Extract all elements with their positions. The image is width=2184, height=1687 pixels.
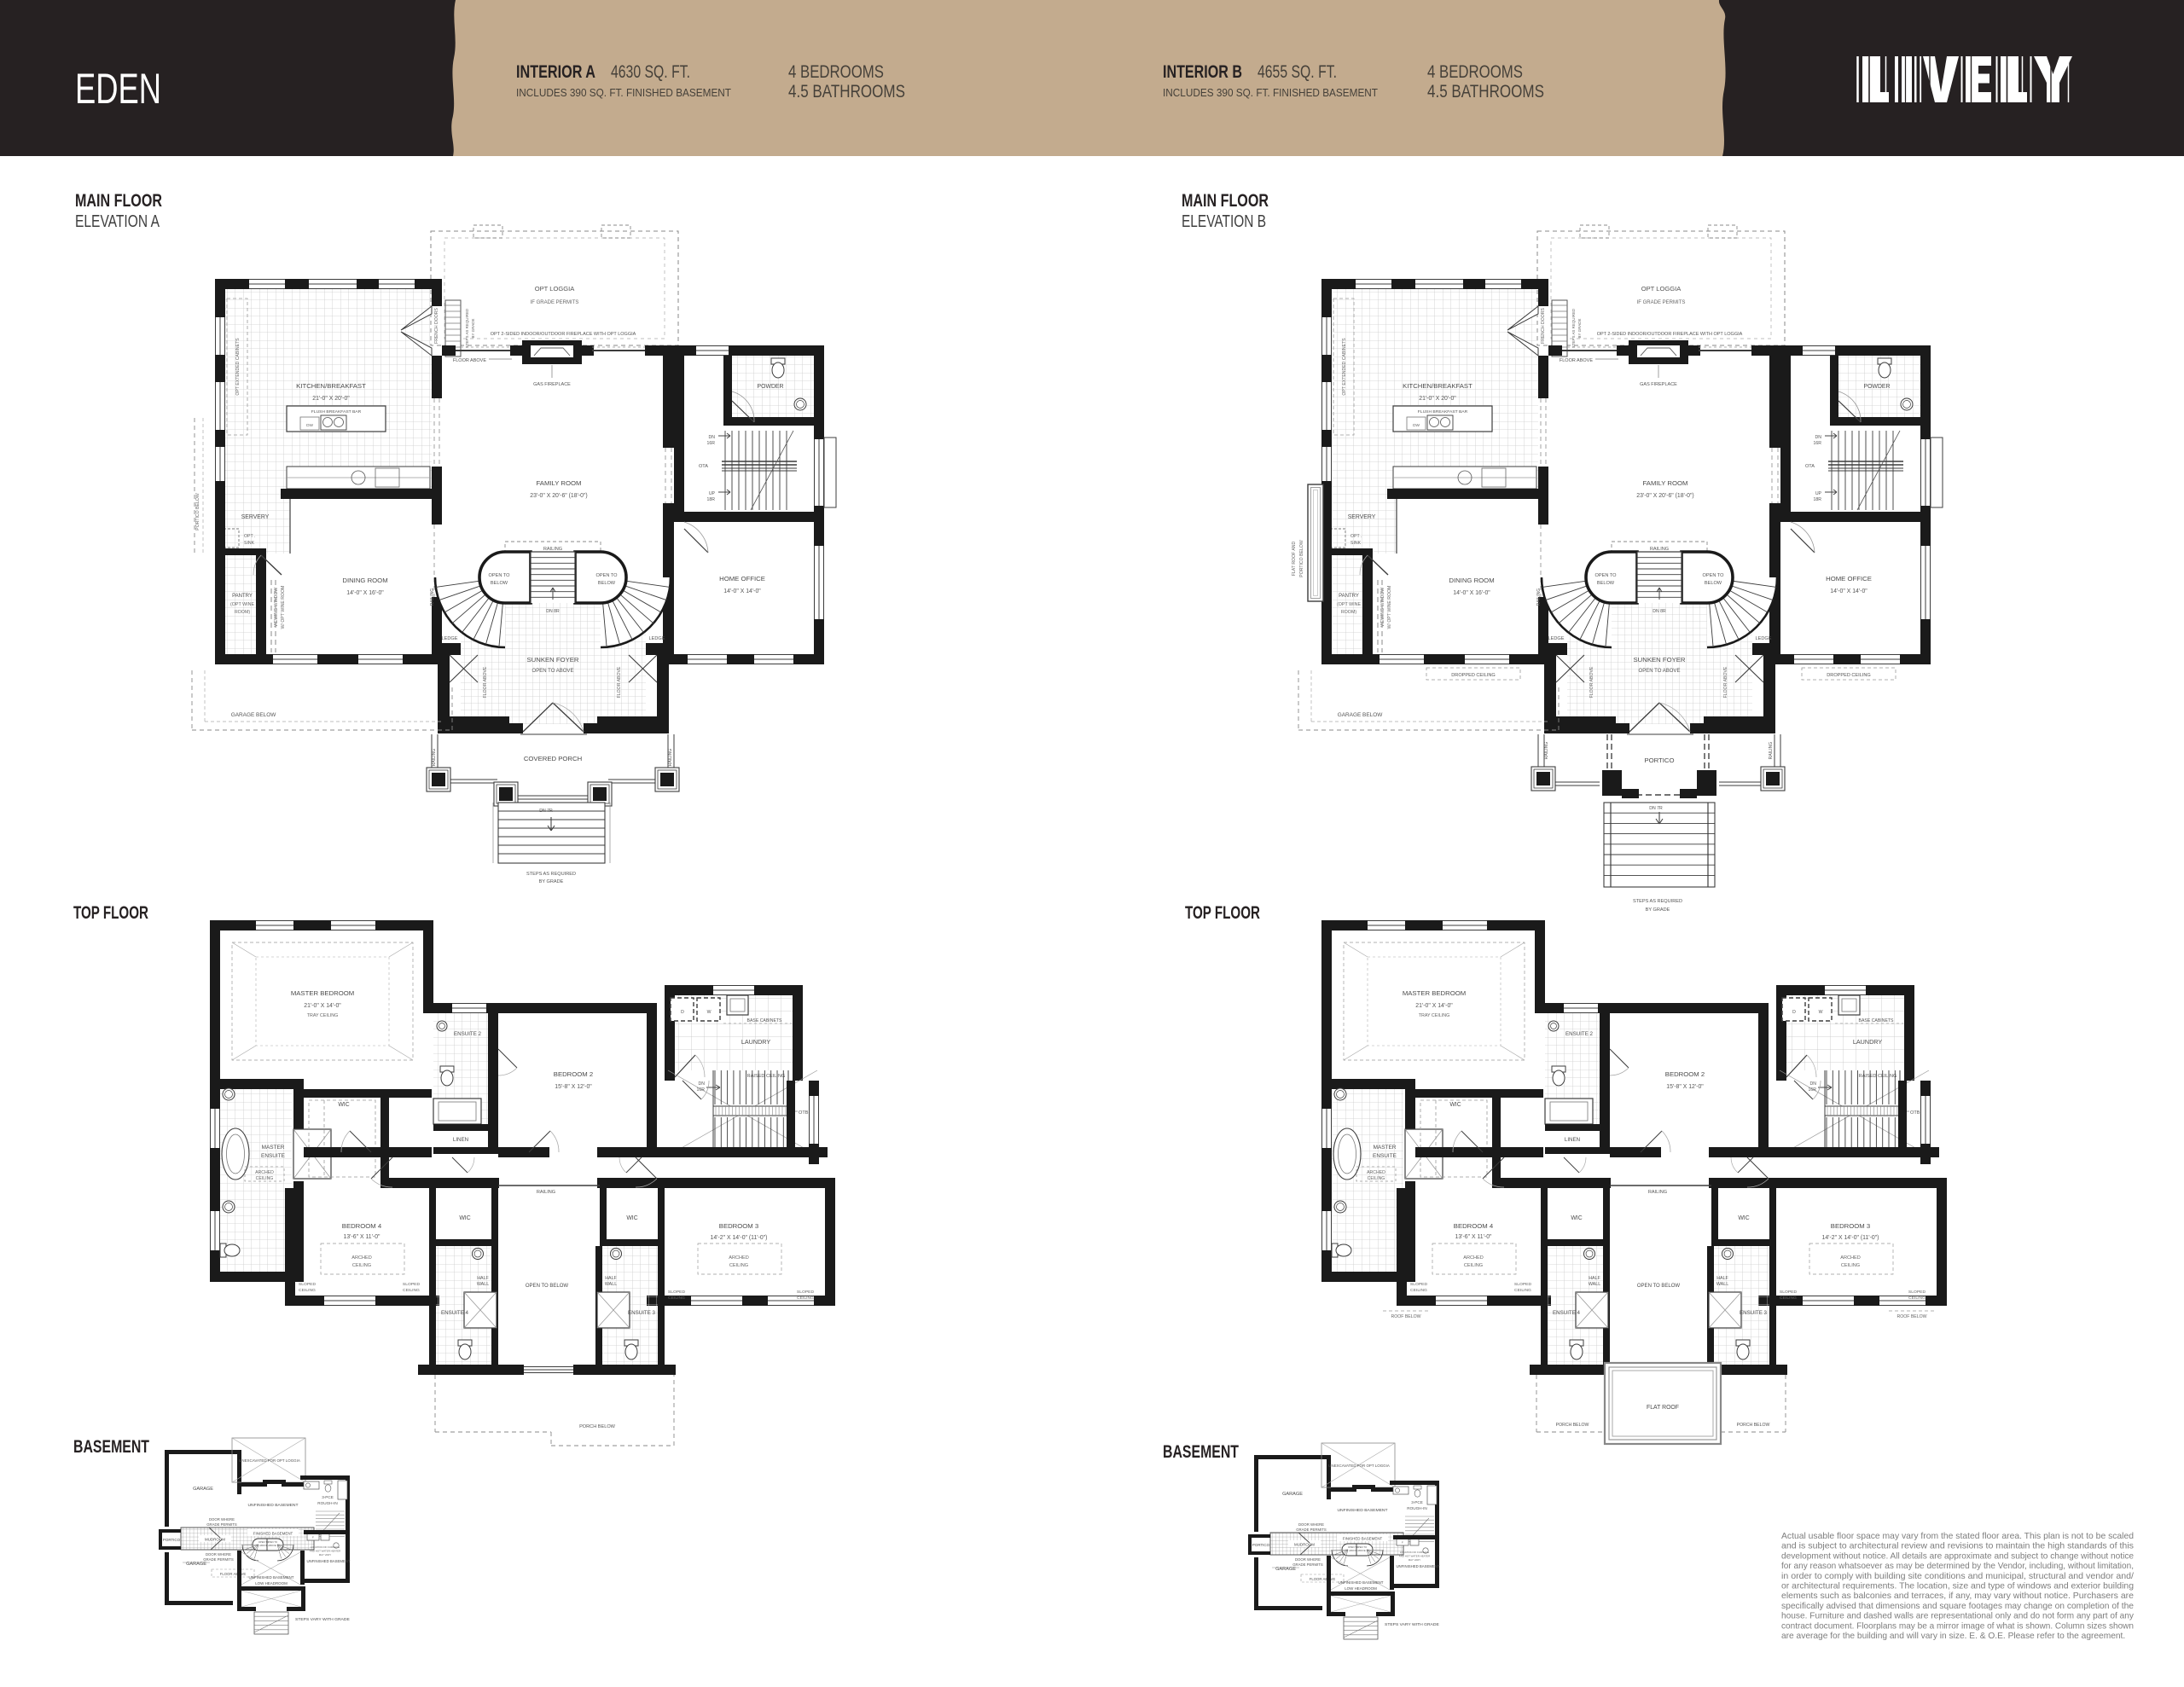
svg-text:14'-0" X 16'-0": 14'-0" X 16'-0" [1453,590,1490,596]
svg-text:CEILING: CEILING [729,1263,748,1268]
svg-text:16R: 16R [697,1087,706,1093]
svg-text:UNEXCAVATED FOR OPT LOGGIA: UNEXCAVATED FOR OPT LOGGIA [1328,1464,1390,1468]
svg-text:SUNKEN FOYER: SUNKEN FOYER [1633,656,1685,664]
svg-text:GAS FIREPLACE: GAS FIREPLACE [1640,382,1677,387]
svg-text:3-PCE: 3-PCE [1411,1500,1423,1504]
svg-text:INTERIOR B: INTERIOR B [1163,61,1242,82]
svg-text:RAILING: RAILING [432,749,437,767]
svg-text:14'-0" X 16'-0": 14'-0" X 16'-0" [346,590,384,596]
svg-text:ENSUITE 4: ENSUITE 4 [441,1310,469,1316]
svg-text:COVERED PORCH: COVERED PORCH [524,755,582,762]
svg-text:DN 7R: DN 7R [1649,806,1663,811]
svg-text:DN: DN [1815,435,1822,440]
svg-text:CEILING: CEILING [299,1288,316,1293]
svg-text:DOOR WHERE: DOOR WHERE [1298,1522,1324,1527]
svg-text:HALF: HALF [1589,1276,1600,1281]
svg-text:F: F [1402,1541,1403,1545]
svg-text:WIC: WIC [626,1215,637,1221]
svg-text:FAMILY ROOM: FAMILY ROOM [1642,479,1687,487]
svg-text:FLOOR ABOVE: FLOOR ABOVE [1589,666,1594,698]
svg-text:SINK: SINK [244,541,255,546]
svg-text:for any reason whatsoever as m: for any reason whatsoever as may be dete… [1781,1562,2134,1571]
svg-text:ARCHED: ARCHED [255,1170,274,1175]
svg-text:BY GRADE: BY GRADE [539,879,564,884]
svg-text:BY GRADE: BY GRADE [1646,907,1670,913]
svg-text:OTA: OTA [699,464,708,469]
svg-text:STEPS AS REQUIRED: STEPS AS REQUIRED [1571,309,1576,348]
svg-text:16R: 16R [707,441,716,446]
svg-text:SLOPED: SLOPED [403,1282,421,1287]
svg-text:HOME OFFICE: HOME OFFICE [719,575,765,583]
svg-text:house. Furniture and dashed wa: house. Furniture and dashed walls are re… [1781,1612,2135,1621]
svg-text:SLOPED: SLOPED [668,1290,686,1295]
svg-text:BELOW: BELOW [491,581,508,586]
svg-text:BEDROOM 2: BEDROOM 2 [1665,1070,1705,1078]
svg-text:ARCHED: ARCHED [1367,1170,1385,1175]
svg-text:WALL: WALL [477,1282,489,1287]
svg-text:15'-8" X 12'-0": 15'-8" X 12'-0" [555,1084,592,1090]
svg-text:GRADE PERMITS: GRADE PERMITS [1292,1562,1323,1567]
svg-text:OPT EXTENDED CABINETS: OPT EXTENDED CABINETS [1342,338,1347,396]
svg-text:FLUSH BREAKFAST BAR: FLUSH BREAKFAST BAR [1418,409,1468,415]
svg-text:BASEMENT: BASEMENT [1163,1442,1239,1462]
svg-text:DN: DN [699,1081,706,1087]
svg-text:SERVERY: SERVERY [241,514,270,520]
svg-text:DW: DW [1413,423,1420,428]
svg-text:PORCH BELOW: PORCH BELOW [1556,1423,1589,1428]
svg-text:HALF: HALF [1716,1276,1728,1281]
svg-text:BELOW: BELOW [1705,581,1722,586]
svg-text:SLOPED: SLOPED [1514,1282,1532,1287]
svg-text:RAILING: RAILING [430,588,435,606]
svg-text:OTA: OTA [1805,464,1815,469]
svg-text:F: F [312,1536,314,1539]
svg-text:DN: DN [709,435,716,440]
svg-text:PANTRY: PANTRY [232,594,253,599]
svg-text:DROPPED CEILING: DROPPED CEILING [1827,673,1870,678]
svg-text:BEDROOM 4: BEDROOM 4 [1454,1222,1494,1230]
svg-text:CEILING: CEILING [1780,1296,1797,1301]
svg-text:ENSUITE 4: ENSUITE 4 [1553,1310,1581,1316]
svg-text:16R: 16R [1809,1087,1817,1093]
svg-text:MASTER BEDROOM: MASTER BEDROOM [1403,989,1466,997]
svg-text:SINK: SINK [1350,541,1362,546]
svg-text:OPEN TO: OPEN TO [1356,1545,1367,1549]
svg-text:UNFINISHED BASEMENT: UNFINISHED BASEMENT [249,1575,294,1580]
svg-text:LEDGE: LEDGE [1756,636,1772,641]
svg-text:W: W [707,1010,712,1015]
svg-text:CEILING: CEILING [1908,1296,1926,1301]
svg-text:RAISED CEILING: RAISED CEILING [1859,1074,1897,1079]
svg-text:OTB: OTB [799,1110,809,1116]
svg-text:BEDROOM 3: BEDROOM 3 [719,1222,758,1230]
svg-text:GRADE PERMITS: GRADE PERMITS [1296,1528,1327,1532]
svg-text:Actual usable floor space may: Actual usable floor space may vary from … [1781,1532,2134,1541]
svg-text:BY GRADE: BY GRADE [1577,319,1582,339]
svg-text:14'-2" X 14'-0" (11'-0"): 14'-2" X 14'-0" (11'-0") [1822,1235,1879,1241]
svg-text:4.5 BATHROOMS: 4.5 BATHROOMS [1427,81,1544,101]
svg-text:CEILING: CEILING [1841,1263,1860,1268]
svg-text:OPEN TO ABOVE: OPEN TO ABOVE [1639,669,1681,674]
svg-text:OPT EXTENDED CABINETS: OPT EXTENDED CABINETS [235,338,241,396]
svg-text:DN 8R: DN 8R [546,609,560,614]
svg-text:development without notice. Al: development without notice. All details … [1781,1551,2134,1561]
svg-text:(OPT WINE: (OPT WINE [1337,602,1361,607]
svg-text:WIC: WIC [1738,1215,1749,1221]
svg-text:ROOM): ROOM) [1341,610,1357,615]
svg-text:OPEN TO: OPEN TO [1703,573,1725,578]
svg-text:STEPS VARY WITH GRADE: STEPS VARY WITH GRADE [295,1617,350,1622]
svg-text:specifically advised that dime: specifically advised that dimensions and… [1781,1602,2134,1611]
svg-text:POWDER: POWDER [1864,384,1891,390]
svg-text:OPEN TO BELOW: OPEN TO BELOW [1637,1284,1681,1289]
svg-text:ARCHED: ARCHED [1463,1255,1484,1261]
svg-text:14'-0" X 14'-0": 14'-0" X 14'-0" [723,588,761,594]
svg-text:DOOR WHERE: DOOR WHERE [1295,1557,1321,1562]
svg-text:21'-0" X 20'-0": 21'-0" X 20'-0" [312,396,350,402]
svg-text:PORTICO BELOW: PORTICO BELOW [195,493,200,530]
svg-text:FLOOR ABOVE: FLOOR ABOVE [1310,1577,1336,1581]
svg-text:23'-0" X 20'-6" (18'-0"): 23'-0" X 20'-6" (18'-0") [1636,493,1693,499]
svg-text:UNFINISHED BASEMENT: UNFINISHED BASEMENT [1337,1508,1387,1513]
svg-text:GAS FIREPLACE: GAS FIREPLACE [533,382,571,387]
svg-text:23'-0" X 20'-6" (18'-0"): 23'-0" X 20'-6" (18'-0") [530,493,587,499]
svg-text:BASE CABINETS: BASE CABINETS [747,1018,783,1023]
svg-text:ELEVATION B: ELEVATION B [1182,212,1266,231]
svg-text:MUDROOM: MUDROOM [205,1538,225,1542]
svg-text:13'-6" X 11'-0": 13'-6" X 11'-0" [344,1234,380,1240]
svg-text:ABOVE: ABOVE [1357,1549,1366,1552]
svg-text:HALF: HALF [477,1276,489,1281]
svg-text:INCLUDES 390 SQ. FT. FINISHED: INCLUDES 390 SQ. FT. FINISHED BASEMENT [516,86,731,99]
svg-text:ROUGH-IN: ROUGH-IN [317,1501,337,1505]
svg-text:DN 7R: DN 7R [539,809,553,814]
svg-text:RAILING: RAILING [1648,1190,1667,1195]
svg-text:UP: UP [1815,491,1822,496]
svg-text:AND HOT WATER HEATER: AND HOT WATER HEATER [310,1550,340,1553]
svg-text:AND HOT WATER HEATER: AND HOT WATER HEATER [1399,1555,1430,1558]
svg-text:KITCHEN/BREAKFAST: KITCHEN/BREAKFAST [1403,382,1472,390]
svg-text:MAIN FLOOR: MAIN FLOOR [75,191,162,211]
svg-text:OPT LOGGIA: OPT LOGGIA [1641,285,1682,293]
svg-text:OPEN TO: OPEN TO [596,573,619,578]
svg-text:FINISHED BASEMENT: FINISHED BASEMENT [1343,1537,1383,1541]
svg-text:ENSUITE: ENSUITE [1373,1153,1397,1159]
svg-text:INTERIOR A: INTERIOR A [516,61,595,82]
svg-text:FAMILY ROOM: FAMILY ROOM [536,479,581,487]
svg-text:WIC: WIC [1449,1102,1461,1108]
svg-text:LEDGE: LEDGE [1548,636,1565,641]
svg-text:FRENCH DOORS: FRENCH DOORS [434,308,439,344]
svg-text:ABOVE: ABOVE [268,1544,276,1547]
svg-text:LINEN: LINEN [453,1137,468,1143]
svg-text:SUNKEN FOYER: SUNKEN FOYER [526,656,578,664]
svg-text:HALF: HALF [605,1276,617,1281]
svg-text:BEDROOM 2: BEDROOM 2 [554,1070,593,1078]
svg-text:SLOPED: SLOPED [1780,1290,1798,1295]
svg-text:VIEWING WINDOW: VIEWING WINDOW [1380,588,1385,628]
svg-text:W/ OPT WINE ROOM: W/ OPT WINE ROOM [281,586,286,629]
svg-text:DOOR WHERE: DOOR WHERE [209,1517,235,1522]
svg-text:DN: DN [1810,1081,1817,1087]
svg-text:CEILING: CEILING [1514,1288,1531,1293]
svg-text:13'-6" X 11'-0": 13'-6" X 11'-0" [1455,1234,1492,1240]
svg-text:3-PCE: 3-PCE [322,1495,334,1499]
svg-text:BY GRADE: BY GRADE [471,319,475,339]
svg-text:DINING ROOM: DINING ROOM [1449,577,1494,584]
svg-text:VIEWING WINDOW: VIEWING WINDOW [274,588,279,628]
svg-text:BELOW: BELOW [1597,581,1615,586]
svg-text:21'-0" X 14'-0": 21'-0" X 14'-0" [304,1003,341,1009]
svg-text:UP: UP [709,491,716,496]
svg-text:BEDROOM 4: BEDROOM 4 [342,1222,382,1230]
svg-text:ARCHED: ARCHED [1840,1255,1861,1261]
svg-text:OPT 2-SIDED INDOOR/OUTDOOR FIR: OPT 2-SIDED INDOOR/OUTDOOR FIREPLACE WIT… [491,332,636,337]
svg-text:OPT LOGGIA: OPT LOGGIA [535,285,575,293]
svg-text:GARAGE BELOW: GARAGE BELOW [1338,712,1384,718]
svg-text:SLOPED: SLOPED [299,1282,317,1287]
svg-text:OPT .: OPT . [244,534,255,539]
svg-text:4.5 BATHROOMS: 4.5 BATHROOMS [788,81,905,101]
svg-text:CEILING: CEILING [403,1288,420,1293]
svg-text:OPT 2-SIDED INDOOR/OUTDOOR FIR: OPT 2-SIDED INDOOR/OUTDOOR FIREPLACE WIT… [1597,332,1743,337]
svg-text:GARAGE: GARAGE [1282,1492,1303,1497]
svg-text:WALL: WALL [1716,1282,1728,1287]
svg-text:RAILING: RAILING [668,749,673,767]
svg-text:LINEN: LINEN [1565,1137,1580,1143]
svg-text:4655 SQ. FT.: 4655 SQ. FT. [1258,61,1337,82]
svg-text:elements such as balconies and: elements such as balconies and terraces,… [1781,1591,2134,1601]
svg-text:4 BEDROOMS: 4 BEDROOMS [1427,61,1523,82]
svg-text:14'-0" X 14'-0": 14'-0" X 14'-0" [1830,588,1867,594]
svg-text:OPEN TO BELOW: OPEN TO BELOW [526,1284,569,1289]
svg-text:FLUSH BREAKFAST BAR: FLUSH BREAKFAST BAR [311,409,362,415]
svg-text:OPEN TO: OPEN TO [1595,573,1618,578]
svg-text:MASTER: MASTER [262,1145,285,1151]
svg-text:CEILING: CEILING [668,1296,685,1301]
svg-text:ABOVE: ABOVE [259,1544,268,1547]
svg-text:CEILING: CEILING [352,1263,371,1268]
svg-text:4630 SQ. FT.: 4630 SQ. FT. [611,61,690,82]
svg-text:BEDROOM 3: BEDROOM 3 [1831,1222,1870,1230]
svg-text:BELOW: BELOW [598,581,616,586]
svg-text:OPT .: OPT . [1350,534,1362,539]
svg-text:FLOOR ABOVE: FLOOR ABOVE [1723,666,1728,698]
svg-text:21'-0" X 20'-0": 21'-0" X 20'-0" [1419,396,1456,402]
svg-text:21'-0" X 14'-0": 21'-0" X 14'-0" [1415,1003,1453,1009]
svg-text:TRAY CEILING: TRAY CEILING [307,1013,339,1018]
svg-text:LEDGE: LEDGE [442,636,458,641]
svg-text:PORTICO: PORTICO [1252,1543,1270,1547]
svg-text:STEPS AS REQUIRED: STEPS AS REQUIRED [1633,899,1682,904]
svg-text:15'-8" X 12'-0": 15'-8" X 12'-0" [1666,1084,1704,1090]
svg-text:SLOPED: SLOPED [1908,1290,1926,1295]
svg-text:UNFINISHED BASEMENT: UNFINISHED BASEMENT [247,1503,298,1508]
svg-text:MASTER BEDROOM: MASTER BEDROOM [291,989,354,997]
svg-text:UNFINISHED BASEMENT: UNFINISHED BASEMENT [1339,1580,1384,1585]
svg-text:PORCH BELOW: PORCH BELOW [1737,1423,1770,1428]
svg-text:PORTICO BELOW: PORTICO BELOW [1299,540,1304,577]
svg-text:HOME OFFICE: HOME OFFICE [1826,575,1872,583]
svg-text:CEILING: CEILING [1368,1176,1385,1181]
svg-text:W/ OPT WINE ROOM: W/ OPT WINE ROOM [1387,586,1392,629]
svg-text:LOCATION OF FURNACE: LOCATION OF FURNACE [311,1545,340,1549]
svg-text:ENSUITE 2: ENSUITE 2 [454,1031,482,1037]
svg-text:FLOOR ABOVE: FLOOR ABOVE [1560,358,1593,363]
svg-text:CEILING: CEILING [797,1296,814,1301]
svg-text:CEILING: CEILING [1464,1263,1483,1268]
svg-text:LAUNDRY: LAUNDRY [1853,1038,1883,1046]
svg-text:IF GRADE PERMITS: IF GRADE PERMITS [531,300,579,305]
svg-text:STEPS AS REQUIRED: STEPS AS REQUIRED [526,872,576,877]
svg-text:ROOF BELOW: ROOF BELOW [1897,1314,1927,1319]
svg-text:STEPS VARY WITH GRADE: STEPS VARY WITH GRADE [1385,1622,1439,1627]
svg-text:INCLUDES 390 SQ. FT. FINISHED: INCLUDES 390 SQ. FT. FINISHED BASEMENT [1163,86,1378,99]
svg-text:RAILING: RAILING [1769,742,1774,760]
svg-text:14'-2" X 14'-0" (11'-0"): 14'-2" X 14'-0" (11'-0") [711,1235,768,1241]
svg-text:OPEN TO ABOVE: OPEN TO ABOVE [532,669,574,674]
svg-text:LAUNDRY: LAUNDRY [741,1038,771,1046]
svg-text:WIC: WIC [1571,1215,1582,1221]
svg-text:MASTER: MASTER [1374,1145,1397,1151]
svg-text:WALL: WALL [1589,1282,1600,1287]
svg-text:(OPT WINE: (OPT WINE [230,602,254,607]
svg-text:ROUGH-IN: ROUGH-IN [1407,1506,1426,1510]
svg-text:ROOF BELOW: ROOF BELOW [1391,1314,1421,1319]
svg-text:MAIN FLOOR: MAIN FLOOR [1182,191,1269,211]
svg-text:LEDGE: LEDGE [649,636,665,641]
svg-text:PORTICO: PORTICO [163,1538,181,1542]
svg-text:WALL: WALL [605,1282,617,1287]
svg-text:CEILING: CEILING [1410,1288,1427,1293]
svg-text:in order to comply with buildi: in order to comply with building site co… [1781,1572,2134,1581]
svg-text:SLOPED: SLOPED [797,1290,815,1295]
svg-text:RAISED CEILING: RAISED CEILING [747,1074,786,1079]
svg-text:ABOVE: ABOVE [1349,1549,1357,1552]
svg-text:EDEN: EDEN [75,65,161,113]
svg-text:OPEN TO: OPEN TO [267,1540,277,1544]
svg-text:RAILING: RAILING [1536,588,1542,606]
svg-text:DW: DW [306,423,313,428]
svg-text:4 BEDROOMS: 4 BEDROOMS [788,61,884,82]
svg-text:D: D [681,1010,684,1015]
svg-text:POWDER: POWDER [758,384,784,390]
svg-text:TOP FLOOR: TOP FLOOR [1185,903,1260,923]
svg-text:FLAT ROOF: FLAT ROOF [1647,1405,1679,1411]
svg-text:contract document. Floorplans: contract document. Floorplans may be a m… [1781,1621,2134,1631]
svg-text:ENSUITE 3: ENSUITE 3 [1740,1310,1768,1316]
svg-text:SLOPED: SLOPED [1410,1282,1428,1287]
svg-text:BASEMENT: BASEMENT [73,1437,149,1457]
svg-text:MAY VARY: MAY VARY [1409,1558,1421,1562]
svg-text:DOOR WHERE: DOOR WHERE [206,1552,231,1557]
svg-text:W: W [1819,1010,1823,1015]
svg-text:UNEXCAVATED FOR OPT LOGGIA: UNEXCAVATED FOR OPT LOGGIA [239,1458,300,1463]
svg-text:or architectural requirements.: or architectural requirements. The locat… [1781,1582,2134,1591]
svg-text:GRADE PERMITS: GRADE PERMITS [206,1522,237,1527]
svg-text:FLAT ROOF AND: FLAT ROOF AND [1292,541,1297,576]
svg-text:SERVERY: SERVERY [1348,514,1376,520]
svg-text:MUDROOM: MUDROOM [1294,1543,1315,1547]
svg-text:GRADE PERMITS: GRADE PERMITS [203,1557,234,1562]
svg-text:KITCHEN/BREAKFAST: KITCHEN/BREAKFAST [296,382,366,390]
svg-text:LOCATION OF FURNACE: LOCATION OF FURNACE [1400,1551,1429,1554]
svg-text:16R: 16R [1814,441,1822,446]
svg-text:GARAGE BELOW: GARAGE BELOW [231,712,277,718]
svg-text:RAILING: RAILING [1544,742,1549,760]
svg-text:STEPS AS REQUIRED: STEPS AS REQUIRED [465,309,469,348]
svg-text:WIC: WIC [459,1215,470,1221]
svg-text:ROOM): ROOM) [235,610,251,615]
svg-text:18R: 18R [707,497,716,502]
svg-text:ELEVATION A: ELEVATION A [75,212,160,231]
svg-text:FINISHED BASEMENT: FINISHED BASEMENT [253,1532,293,1536]
svg-text:GARAGE: GARAGE [193,1487,213,1492]
svg-text:PORCH BELOW: PORCH BELOW [579,1424,616,1429]
svg-text:and is subject to architectura: and is subject to architectural review a… [1781,1542,2134,1551]
svg-text:OPEN TO: OPEN TO [489,573,511,578]
svg-text:RAILING: RAILING [1650,547,1669,552]
svg-text:LOW HEADROOM: LOW HEADROOM [1345,1586,1377,1591]
svg-text:D: D [1792,1010,1796,1015]
svg-text:UNFINISHED BASEMENT: UNFINISHED BASEMENT [1396,1564,1439,1568]
svg-text:ARCHED: ARCHED [729,1255,749,1261]
svg-text:LOW HEADROOM: LOW HEADROOM [255,1581,288,1586]
svg-text:WIC: WIC [338,1102,349,1108]
svg-text:are average for the building a: are average for the building and will va… [1781,1632,2125,1641]
svg-text:ARCHED: ARCHED [351,1255,372,1261]
svg-text:TRAY CEILING: TRAY CEILING [1419,1013,1450,1018]
svg-text:TOP FLOOR: TOP FLOOR [73,903,148,923]
svg-text:PANTRY: PANTRY [1339,594,1359,599]
svg-text:UNFINISHED BASEMENT: UNFINISHED BASEMENT [306,1559,350,1563]
svg-text:PORTICO: PORTICO [1644,757,1674,764]
svg-text:DN 8R: DN 8R [1653,609,1666,614]
svg-text:RAILING: RAILING [543,547,562,552]
svg-text:FLOOR ABOVE: FLOOR ABOVE [453,358,486,363]
svg-text:FRENCH DOORS: FRENCH DOORS [1541,308,1546,344]
svg-text:FLOOR ABOVE: FLOOR ABOVE [483,666,488,698]
svg-text:ENSUITE: ENSUITE [261,1153,286,1159]
svg-text:RAILING: RAILING [537,1190,555,1195]
svg-text:ENSUITE 2: ENSUITE 2 [1565,1031,1594,1037]
svg-text:IF GRADE PERMITS: IF GRADE PERMITS [1637,300,1686,305]
svg-text:OTB: OTB [1910,1110,1920,1116]
svg-text:18R: 18R [1814,497,1822,502]
svg-text:MAY VARY: MAY VARY [319,1553,332,1557]
svg-text:DINING ROOM: DINING ROOM [342,577,387,584]
svg-text:DROPPED CEILING: DROPPED CEILING [1451,673,1495,678]
svg-text:FLOOR ABOVE: FLOOR ABOVE [220,1572,247,1576]
svg-text:ENSUITE 3: ENSUITE 3 [628,1310,656,1316]
svg-text:CEILING: CEILING [256,1176,274,1181]
svg-text:FLOOR ABOVE: FLOOR ABOVE [617,666,622,698]
svg-text:BASE CABINETS: BASE CABINETS [1859,1018,1895,1023]
